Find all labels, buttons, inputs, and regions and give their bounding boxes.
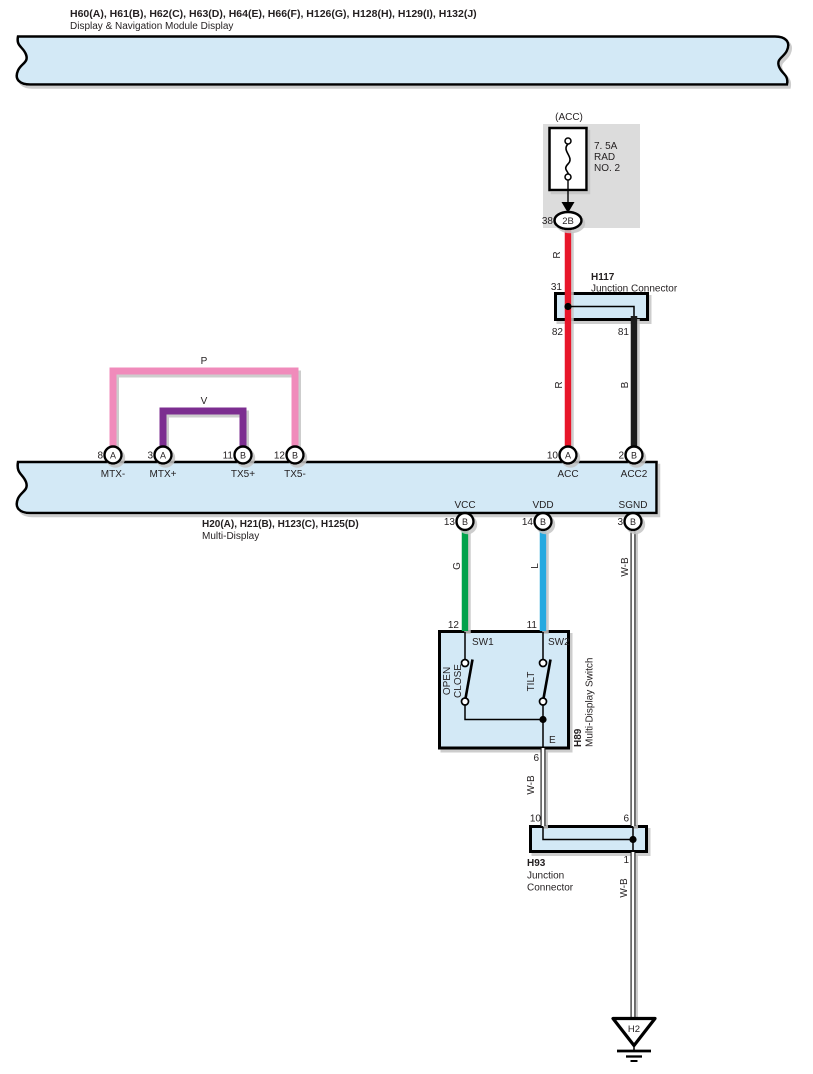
pin-number: 8 xyxy=(97,451,103,462)
pin-connector-letter: B xyxy=(292,451,298,461)
fuse-pin-number: 38 xyxy=(542,216,554,227)
wiring-diagram-canvas: H60(A), H61(B), H62(C), H63(D), H64(E), … xyxy=(0,0,813,1074)
fuse-connector-code: 2B xyxy=(562,216,574,227)
signal-label: VCC xyxy=(454,500,475,511)
pin-connector-letter: B xyxy=(540,517,546,527)
wire-purple-jumper xyxy=(163,411,243,452)
signal-label: TX5+ xyxy=(231,469,255,480)
signal-label: ACC2 xyxy=(621,469,648,480)
h93-type-line2: Connector xyxy=(527,883,574,894)
module-connector-list: H60(A), H61(B), H62(C), H63(D), H64(E), … xyxy=(70,8,477,20)
pin-connector-letter: B xyxy=(630,517,636,527)
wire-color-label-wb-switch: W-B xyxy=(526,775,537,795)
fuse-terminal-top xyxy=(565,138,571,144)
sw1-contact-bottom xyxy=(462,698,469,705)
wire-color-label-wb-ground: W-B xyxy=(619,878,630,898)
multi-display-connector-list: H20(A), H21(B), H123(C), H125(D) xyxy=(202,519,359,530)
sw2-action-tilt: TILT xyxy=(526,672,537,692)
switch-pin-11: 11 xyxy=(527,620,538,631)
pin-number: 3 xyxy=(617,517,623,528)
pin-number: 11 xyxy=(223,451,234,462)
signal-label: MTX+ xyxy=(150,469,177,480)
pin-number: 2 xyxy=(618,451,624,462)
h89-name: Multi-Display Switch xyxy=(585,658,596,747)
pin-number: 12 xyxy=(274,451,286,462)
display-navigation-module-band xyxy=(17,37,789,85)
h117-pin-31: 31 xyxy=(551,282,563,293)
h117-id: H117 xyxy=(591,272,615,283)
h117-junction-dot xyxy=(564,303,571,310)
wire-color-label-l: L xyxy=(530,563,541,569)
signal-label: VDD xyxy=(532,500,553,511)
ground-id: H2 xyxy=(628,1024,640,1035)
h117-pin-81: 81 xyxy=(618,327,630,338)
wire-color-label-g: G xyxy=(452,562,463,570)
sw2-contact-bottom xyxy=(540,698,547,705)
h93-type-line1: Junction xyxy=(527,871,564,882)
signal-label: ACC xyxy=(557,469,578,480)
h93-pin-1: 1 xyxy=(623,855,629,866)
wire-color-label-r-lower: R xyxy=(554,381,565,388)
wire-color-label-wb-sgnd: W-B xyxy=(620,557,631,577)
h117-type: Junction Connector xyxy=(591,284,678,295)
pin-connector-letter: A xyxy=(160,451,166,461)
pin-number: 3 xyxy=(147,451,153,462)
wiring-diagram-page: H60(A), H61(B), H62(C), H63(D), H64(E), … xyxy=(0,0,813,1074)
wire-color-label-p: P xyxy=(201,356,208,367)
pin-connector-letter: A xyxy=(110,451,116,461)
pin-connector-letter: A xyxy=(565,451,571,461)
sw2-label: SW2 xyxy=(548,637,570,648)
switch-junction-dot xyxy=(539,716,546,723)
pin-number: 14 xyxy=(522,517,534,528)
h89-id: H89 xyxy=(573,728,584,747)
pin-connector-letter: B xyxy=(240,451,246,461)
wire-color-label-r-upper: R xyxy=(552,251,563,258)
pin-connector-letter: B xyxy=(631,451,637,461)
fuse-source-label: (ACC) xyxy=(555,112,583,123)
signal-label: SGND xyxy=(619,500,648,511)
diagram-title: Display & Navigation Module Display xyxy=(70,21,233,32)
wire-color-label-b: B xyxy=(620,381,631,388)
pin-number: 10 xyxy=(547,451,559,462)
multi-display-name: Multi-Display xyxy=(202,531,259,542)
h93-junction-dot xyxy=(629,836,636,843)
h93-pin-10: 10 xyxy=(530,814,542,825)
switch-pin-6: 6 xyxy=(533,753,539,764)
pin-number: 13 xyxy=(444,517,456,528)
h117-pin-82: 82 xyxy=(552,327,564,338)
h93-pin-6: 6 xyxy=(623,814,629,825)
fuse-rating: 7. 5A xyxy=(594,141,618,152)
h93-id: H93 xyxy=(527,858,546,869)
switch-pin-12: 12 xyxy=(448,620,460,631)
sw2-contact-top xyxy=(540,660,547,667)
fuse-name-line1: RAD xyxy=(594,152,615,163)
sw1-action-close: CLOSE xyxy=(453,664,464,698)
switch-pin-e: E xyxy=(549,735,556,746)
sw1-action-open: OPEN xyxy=(442,667,453,695)
fuse-name-line2: NO. 2 xyxy=(594,163,621,174)
sw1-label: SW1 xyxy=(472,637,494,648)
fuse-terminal-bottom xyxy=(565,174,571,180)
signal-label: TX5- xyxy=(284,469,306,480)
wire-color-label-v: V xyxy=(201,396,208,407)
signal-label: MTX- xyxy=(101,469,125,480)
pin-connector-letter: B xyxy=(462,517,468,527)
